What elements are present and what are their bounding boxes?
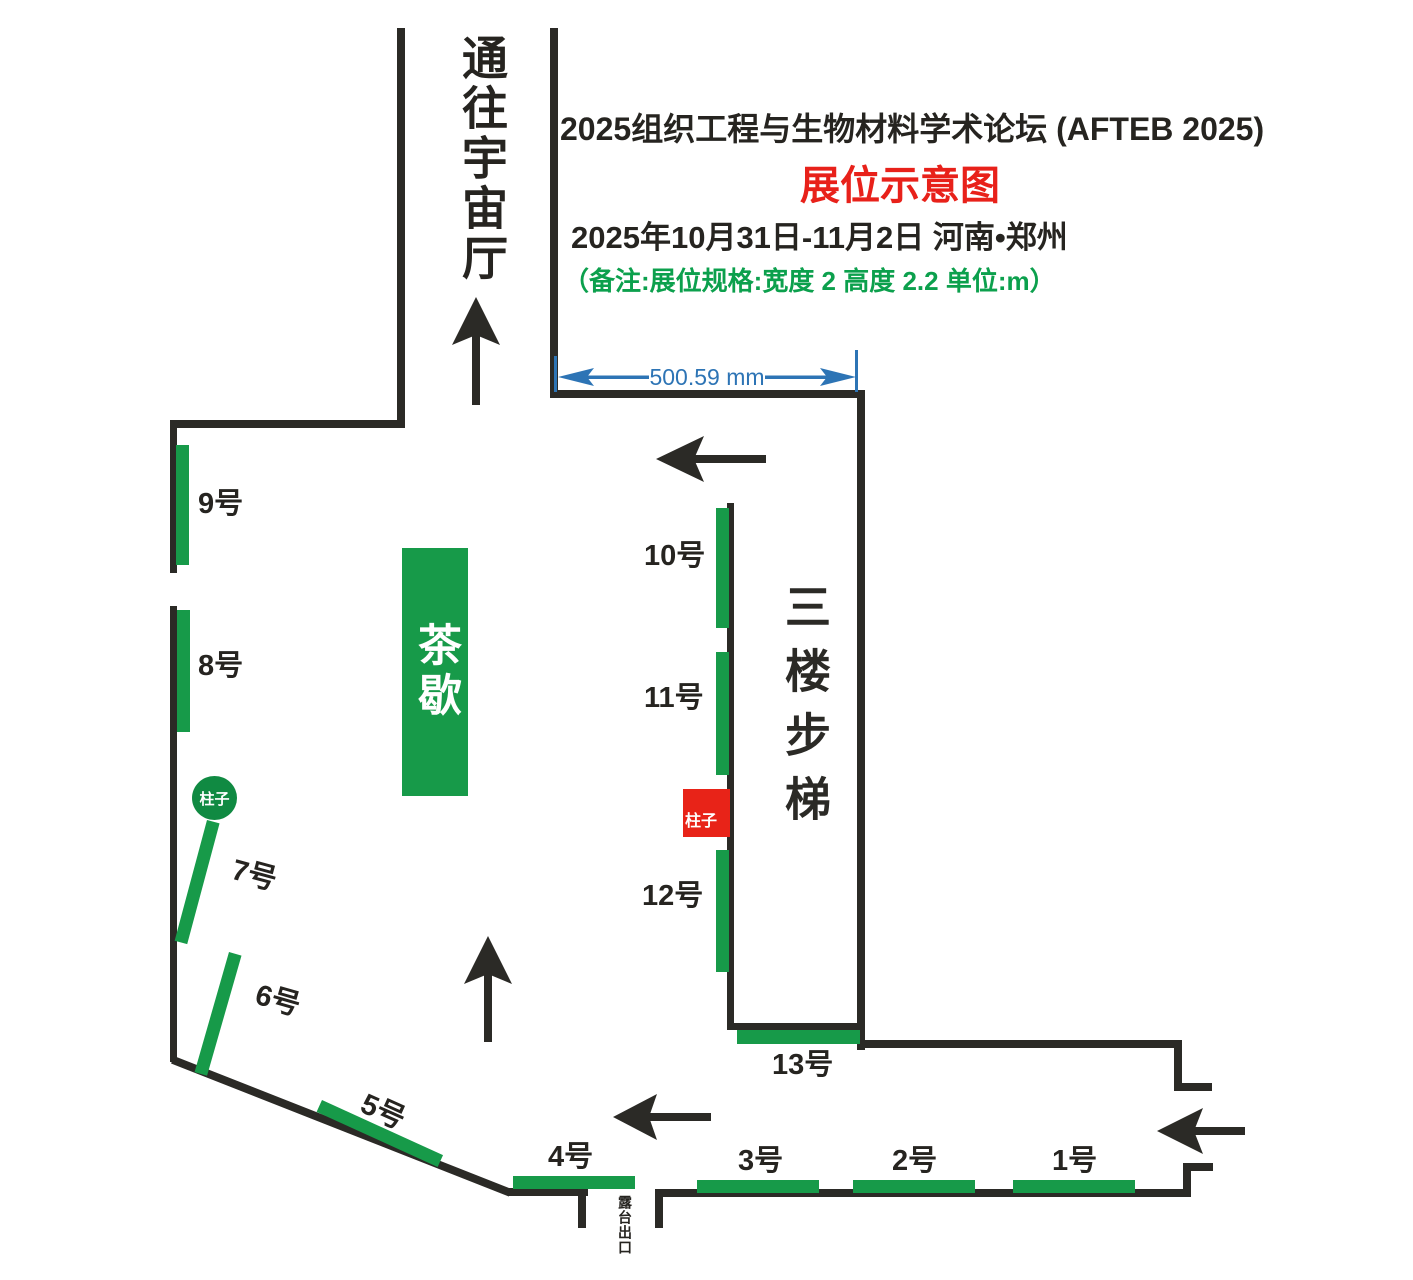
wall-terrace-exit-right [655,1189,663,1228]
booth-label-7: 7号 [228,856,279,896]
booth-strip-4 [513,1176,635,1189]
arrow-left-entrance-icon [1157,1108,1245,1154]
wall-entrance-top-stub [1174,1083,1212,1091]
booth-strip-1 [1013,1180,1135,1193]
booth-label-11: 11号 [644,684,704,713]
booth-label-8: 8号 [198,652,243,681]
arrow-left-bottom-icon [613,1094,711,1140]
wall-terrace-exit-left [578,1192,586,1228]
stairs-label: 三楼步梯 [772,583,838,839]
date-location: 2025年10月31日-11月2日 河南•郑州 [571,212,1068,257]
pillar-round: 柱子 [192,776,237,820]
arrow-up-floor-icon [464,936,512,1042]
booth-strip-8 [177,610,190,732]
wall-left-lower [170,606,177,1062]
booth-strip-3 [697,1180,819,1193]
booth-spec-note: （备注:展位规格:宽度 2 高度 2.2 单位:m） [563,261,1056,298]
booth-strip-9 [176,445,189,565]
arrow-left-top-icon [656,436,766,482]
booth-label-13: 13号 [772,1051,833,1080]
pillar-round-label: 柱子 [199,788,229,809]
booth-strip-2 [853,1180,975,1193]
page-subtitle: 展位示意图 [560,153,1240,211]
wall-under-booth4 [508,1188,588,1196]
booth-label-6: 6号 [252,981,303,1021]
floor-plan: 2025组织工程与生物材料学术论坛 (AFTEB 2025) 展位示意图 202… [0,0,1413,1280]
pillar-square: 柱子 [683,789,730,837]
booth-label-4: 4号 [548,1143,593,1172]
booth-strip-11 [716,652,729,775]
booth-label-3: 3号 [738,1147,783,1176]
terrace-exit-label: 露台出口 [615,1195,635,1255]
arrow-up-corridor-icon [452,297,500,405]
booth-label-9: 9号 [198,490,243,519]
wall-right-bottom-horizontal [857,1040,1182,1048]
booth-label-2: 2号 [892,1147,937,1176]
booth-label-12: 12号 [642,882,703,911]
wall-stairs-bottom [727,1023,865,1030]
booth-label-10: 10号 [644,542,705,571]
booth-strip-12 [716,850,729,972]
wall-top-left-horizontal [170,420,405,428]
dimension-label: 500.59 mm [556,364,858,391]
booth-strip-10 [716,508,729,628]
booth-strip-13 [737,1030,860,1044]
corridor-label: 通往宇宙厅 [449,34,515,284]
wall-corridor-left [397,28,405,428]
wall-right-vertical [857,390,865,1050]
wall-diagonal [171,1056,512,1196]
tea-break-area: 茶歇 [402,548,468,796]
booth-label-1: 1号 [1052,1147,1097,1176]
booth-strip-6 [195,952,242,1076]
tea-break-label: 茶歇 [403,622,467,722]
booth-strip-7 [175,820,220,944]
page-title: 2025组织工程与生物材料学术论坛 (AFTEB 2025) [560,104,1240,150]
pillar-square-label: 柱子 [685,807,717,831]
wall-top-horizontal [550,390,865,398]
wall-corridor-right [550,28,558,398]
